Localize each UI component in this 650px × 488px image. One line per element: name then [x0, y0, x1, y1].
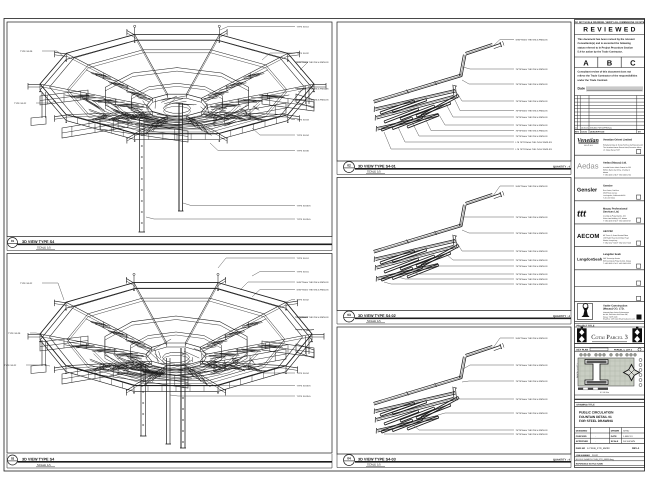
- svg-text:75*75*6mm THK GALV ANGLES: 75*75*6mm THK GALV ANGLES: [516, 380, 549, 383]
- svg-text:LangdonSeah: LangdonSeah: [577, 258, 603, 262]
- svg-text:Aedas: Aedas: [577, 162, 599, 171]
- svg-text:75*75*6mm THK GALV ANGLES: 75*75*6mm THK GALV ANGLES: [516, 429, 549, 432]
- svg-text:SHS*75mm THK GALV ANGLES: SHS*75mm THK GALV ANGLES: [516, 38, 549, 41]
- svg-text:75*75*6mm THK GALV ANGLES: 75*75*6mm THK GALV ANGLES: [516, 364, 549, 367]
- svg-text:SHS*75mm THK GALV ANGLES: SHS*75mm THK GALV ANGLES: [297, 281, 330, 284]
- svg-text:Consultant review of this: Consultant review of this document does …: [578, 71, 632, 74]
- svg-text:FOR STEEL DRAWING: FOR STEEL DRAWING: [579, 419, 614, 423]
- svg-text:M A C A U: M A C A U: [584, 144, 593, 147]
- svg-text:DRAWN: DRAWN: [611, 430, 620, 433]
- svg-text:3-YSUB_FTD_85099: 3-YSUB_FTD_85099: [587, 447, 610, 450]
- svg-text:75*75*6mm THK GALV ANGLES: 75*75*6mm THK GALV ANGLES: [516, 68, 549, 71]
- svg-text:TYPE S4-10: TYPE S4-10: [297, 25, 310, 28]
- svg-text:TYPE S4-09: TYPE S4-09: [20, 50, 33, 53]
- svg-text:75*75*6mm THK GALV ANGLES: 75*75*6mm THK GALV ANGLES: [516, 100, 549, 103]
- svg-text:02: 02: [347, 163, 351, 167]
- svg-text:1-MAY-13: 1-MAY-13: [623, 435, 633, 438]
- svg-text:AECOM: AECOM: [577, 233, 599, 240]
- svg-text:SCALE 1/5: SCALE 1/5: [37, 246, 51, 250]
- svg-text:TYPE S4-03: TYPE S4-03: [297, 118, 310, 121]
- svg-text:REFERENCE NO FILE NAME: REFERENCE NO FILE NAME: [576, 462, 604, 465]
- svg-text:02: 02: [11, 456, 15, 460]
- svg-text:75*75*6mm THK GALV ANGLES: 75*75*6mm THK GALV ANGLES: [516, 129, 549, 132]
- svg-text:3D VIEW TYPE S4: 3D VIEW TYPE S4: [22, 458, 55, 462]
- svg-text:3D VIEW TYPE S4-01: 3D VIEW TYPE S4-01: [358, 165, 396, 169]
- svg-text:75*75*6mm THK GALV ANGLES: 75*75*6mm THK GALV ANGLES: [516, 273, 549, 276]
- svg-text:AECOM: AECOM: [603, 230, 613, 233]
- svg-text:AS SHOWN: AS SHOWN: [623, 440, 635, 443]
- svg-text:SHS*75mm THK GALV ANGLES: SHS*75mm THK GALV ANGLES: [297, 316, 330, 319]
- svg-text:03: 03: [347, 313, 351, 317]
- svg-text:TYPE S4-02: TYPE S4-02: [297, 52, 310, 55]
- svg-text:SHS*75mm THK GALV ANGLES: SHS*75mm THK GALV ANGLES: [516, 337, 549, 340]
- svg-text:REV A: REV A: [632, 447, 639, 450]
- svg-text:SHS*75mm THK GALV ANGLES: SHS*75mm THK GALV ANGLES: [297, 288, 330, 291]
- svg-text:SCALE 1/5: SCALE 1/5: [367, 170, 381, 174]
- svg-text:0 5 10 25m: 0 5 10 25m: [600, 391, 609, 394]
- svg-text:A: A: [583, 58, 589, 67]
- svg-text:APPROVED: APPROVED: [576, 440, 589, 443]
- svg-text:CHAD: CHAD: [623, 430, 630, 433]
- svg-text:TYPE S4-02: TYPE S4-02: [297, 298, 310, 301]
- svg-text:NO FILE NAME/3-YSUB_FTD_85099.: NO FILE NAME/3-YSUB_FTD_85099.dwg: [576, 458, 614, 461]
- svg-text:TYPE S4-02: TYPE S4-02: [14, 102, 27, 105]
- svg-text:Gensler: Gensler: [603, 185, 613, 188]
- svg-text:75*75*6mm THK GALV ANGLES: 75*75*6mm THK GALV ANGLES: [516, 232, 549, 235]
- svg-text:TYPE S4-05 A: TYPE S4-05 A: [297, 204, 312, 207]
- svg-text:Venetian Orient Limited: Venetian Orient Limited: [603, 139, 632, 142]
- svg-text:TYPE S4-05 A: TYPE S4-05 A: [297, 384, 312, 387]
- svg-text:SCALE: SCALE: [611, 440, 619, 443]
- svg-text:T +852 2317 7632 F +852 2317: T +852 2317 7632 F +852 2317 7609: [603, 242, 631, 245]
- svg-text:75*75*6mm THK GALV ANGLES: 75*75*6mm THK GALV ANGLES: [516, 259, 549, 262]
- svg-text:(Macau) CO, LTD.: (Macau) CO, LTD.: [603, 308, 625, 311]
- svg-text:75*75*6mm THK GALV ANGLES: 75*75*6mm THK GALV ANGLES: [516, 116, 549, 119]
- svg-text:Aedas (Macau) Ltd.: Aedas (Macau) Ltd.: [603, 162, 627, 165]
- svg-text:01: 01: [11, 239, 15, 243]
- svg-text:T +853 2833 1780 F +853 2833: T +853 2833 1780 F +853 2833 1790: [603, 174, 631, 177]
- svg-text:under the Trade Contract.: under the Trade Contract.: [578, 79, 609, 82]
- svg-text:status referred to in Projec: status referred to in Project Procedure …: [578, 46, 634, 49]
- svg-text:75*75*6mm THK GALV ANGLES: 75*75*6mm THK GALV ANGLES: [516, 216, 549, 219]
- svg-text:75*75*6mm THK GALV ANGLES: 75*75*6mm THK GALV ANGLES: [516, 278, 549, 281]
- svg-text:04: 04: [347, 456, 351, 460]
- svg-text:CHECKED: CHECKED: [576, 435, 587, 438]
- svg-text:3D VIEW TYPE S4-03: 3D VIEW TYPE S4-03: [358, 458, 396, 462]
- svg-text:75*75*6mm THK GALV ANGLES: 75*75*6mm THK GALV ANGLES: [516, 265, 549, 268]
- svg-text:75*75*6mm THK GALV ANGLES: 75*75*6mm THK GALV ANGLES: [516, 433, 549, 436]
- svg-text:L75 75*75*6mm THK GALV ANGLES: L75 75*75*6mm THK GALV ANGLES: [516, 148, 553, 151]
- svg-text:13.05.15: 13.05.15: [581, 126, 588, 129]
- svg-text:Langdon Seah: Langdon Seah: [603, 253, 621, 256]
- svg-text:TYPE S4-05: TYPE S4-05: [297, 149, 310, 152]
- svg-text:Gensler: Gensler: [577, 188, 598, 194]
- svg-text:T +853 2833 1710 F +853 2833: T +853 2833 1710 F +853 2833 1532: [603, 262, 631, 265]
- svg-text:C: C: [630, 58, 636, 67]
- svg-text:SHS*75mm THK GALV ANGLES: SHS*75mm THK GALV ANGLES: [297, 61, 330, 64]
- svg-text:75*75*6mm THK GALV ANGLES: 75*75*6mm THK GALV ANGLES: [516, 250, 549, 253]
- svg-text:TYPE S4-01: TYPE S4-01: [297, 270, 310, 273]
- svg-text:T +853 2878 5796 F +853 2878: T +853 2878 5796 F +853 2878 5797: [603, 220, 631, 223]
- svg-text:JOB NUMBER: JOB NUMBER: [576, 454, 590, 457]
- svg-text:relieve the Trade Contractor: relieve the Trade Contractor of the resp…: [578, 75, 638, 78]
- svg-text:SHS*75mm THK GALV ANGLES: SHS*75mm THK GALV ANGLES: [516, 185, 549, 188]
- svg-text:TYPE S4-04: TYPE S4-04: [297, 372, 310, 375]
- svg-text:3D VIEW TYPE S4: 3D VIEW TYPE S4: [22, 240, 55, 244]
- svg-text:TYPE S4-05 A: TYPE S4-05 A: [297, 218, 312, 221]
- svg-text:TYPE S4-05 A: TYPE S4-05 A: [297, 395, 312, 398]
- svg-text:PARCEL 1, LOT 1: PARCEL 1, LOT 1: [576, 364, 579, 378]
- svg-text:31520: 31520: [592, 454, 599, 457]
- svg-text:TYPE S4-04: TYPE S4-04: [297, 134, 310, 137]
- svg-text:TYPE S4-02: TYPE S4-02: [20, 282, 33, 285]
- svg-text:75*75*6mm THK GALV ANGLES: 75*75*6mm THK GALV ANGLES: [516, 135, 549, 138]
- svg-text:SHS*75mm THK GALV ANGLES: SHS*75mm THK GALV ANGLES: [297, 98, 330, 101]
- svg-text:L75 75*75*6mm THK GALV ANGLES: L75 75*75*6mm THK GALV ANGLES: [516, 141, 553, 144]
- svg-text:DO NOT SCALE DRAWING. VERIFY A: DO NOT SCALE DRAWING. VERIFY ALL DIMENSI…: [575, 21, 645, 24]
- svg-text:TYPE S4-09: TYPE S4-09: [8, 332, 21, 335]
- svg-text:75*75*6mm THK GALV ANGLES: 75*75*6mm THK GALV ANGLES: [516, 124, 549, 127]
- svg-text:T 213.327.3600: T 213.327.3600: [603, 197, 615, 200]
- svg-text:TYPE S4-02: TYPE S4-02: [4, 364, 17, 367]
- svg-text:5.4 for action by the Tra: 5.4 for action by the Trade Contractor.: [578, 51, 623, 54]
- svg-text:DESIGNED: DESIGNED: [576, 430, 588, 433]
- svg-text:Services Ltd.: Services Ltd.: [603, 211, 619, 214]
- svg-text:75*75*6mm THK GALV ANGLES: 75*75*6mm THK GALV ANGLES: [516, 398, 549, 401]
- svg-text:ttt: ttt: [577, 209, 587, 219]
- svg-text:ISSUED FOR APPROVAL: ISSUED FOR APPROVAL: [590, 126, 612, 129]
- svg-text:This document has been revised: This document has been revised by the re…: [578, 38, 635, 41]
- svg-text:R E V I E W E D: R E V I E W E D: [583, 27, 636, 34]
- svg-text:DATE: DATE: [611, 435, 617, 438]
- svg-text:75*75*6mm THK GALV ANGLES: 75*75*6mm THK GALV ANGLES: [516, 109, 549, 112]
- svg-text:Date :: Date :: [578, 86, 587, 90]
- svg-text:L2, Taipa, Macao SAR: L2, Taipa, Macao SAR: [603, 149, 621, 152]
- svg-text:DRAWING TITLE: DRAWING TITLE: [577, 404, 596, 407]
- svg-text:B: B: [607, 58, 613, 67]
- svg-text:TYPE S4-10: TYPE S4-10: [297, 257, 310, 260]
- svg-text:DWG NO: DWG NO: [576, 447, 586, 450]
- svg-text:Consultants(s) and is accorded: Consultants(s) and is accorded the follo…: [578, 42, 632, 45]
- svg-text:3D VIEW TYPE S4-02: 3D VIEW TYPE S4-02: [358, 314, 396, 318]
- svg-text:TYPE S4-03: TYPE S4-03: [297, 328, 310, 331]
- svg-text:75*75*6mm THK GALV ANGLES: 75*75*6mm THK GALV ANGLES: [516, 83, 549, 86]
- svg-text:Cotai Parcel 3: Cotai Parcel 3: [591, 334, 628, 341]
- svg-text:75*75*6mm THK GALV ANGLES: 75*75*6mm THK GALV ANGLES: [516, 283, 549, 286]
- svg-text:SHS*75mm THK GALV ANGLES: SHS*75mm THK GALV ANGLES: [297, 87, 330, 90]
- svg-text:75*75*6mm THK GALV ANGLES: 75*75*6mm THK GALV ANGLES: [516, 412, 549, 415]
